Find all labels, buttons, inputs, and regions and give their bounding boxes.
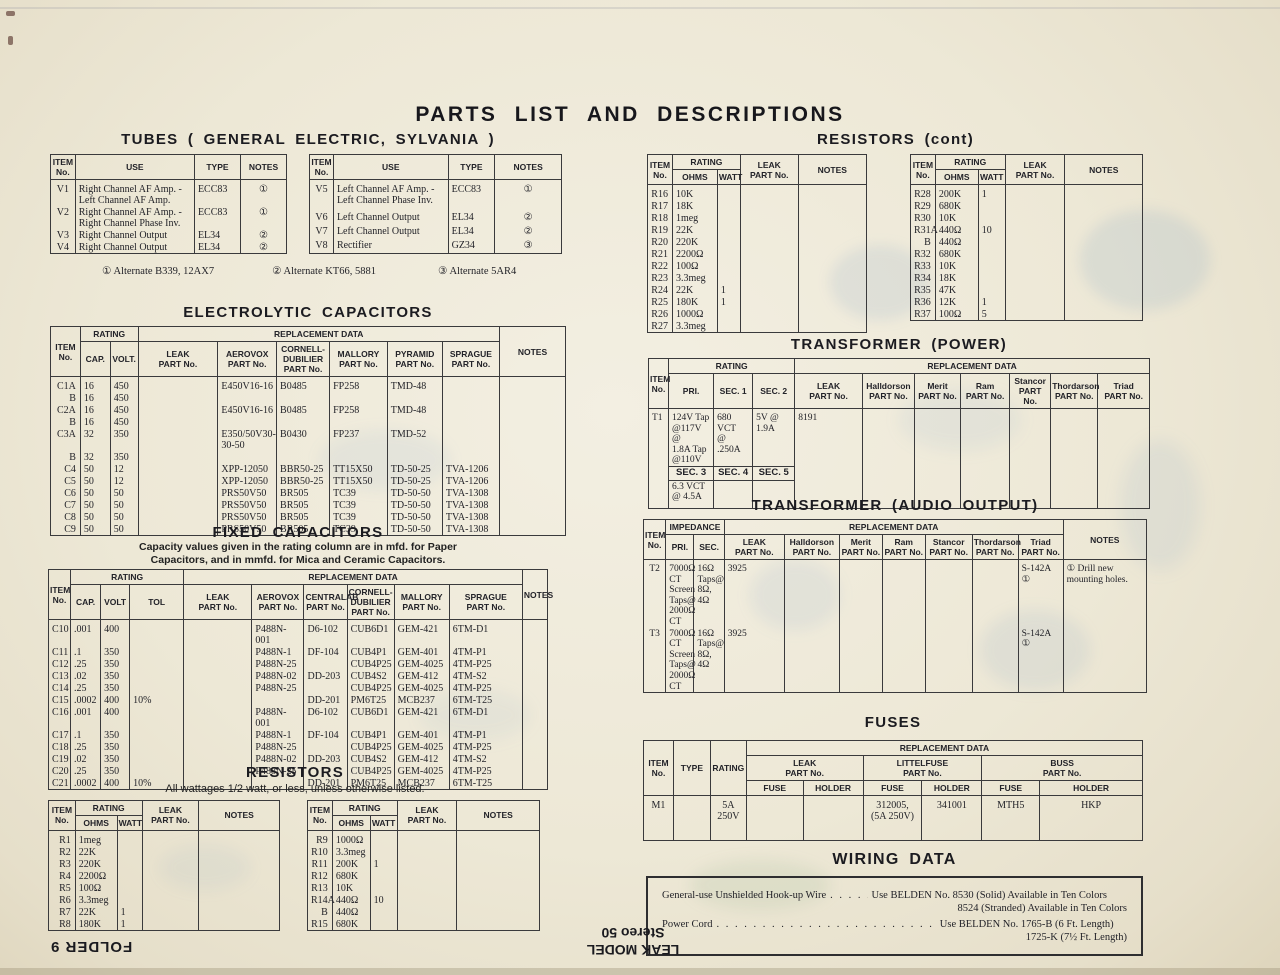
transformer-power-section: TRANSFORMER (POWER) ITEM No. RATING REPL… [648, 336, 1150, 509]
table-cell [1065, 236, 1143, 248]
table-cell [218, 392, 277, 404]
table-cell [500, 416, 566, 428]
col-header-pri: PRI. [666, 535, 694, 560]
transformer-audio-section: TRANSFORMER (AUDIO OUTPUT) ITEM No. IMPE… [643, 497, 1147, 693]
wiring-row: General-use Unshielded Hook-up Wire Use … [662, 889, 1127, 915]
table-cell: E450V16-16 [218, 404, 277, 416]
footnote-3: ③ Alternate 5AR4 [438, 265, 516, 277]
table-cell [252, 694, 304, 706]
fixed-capacitors-table: ITEM No. RATING REPLACEMENT DATA NOTES C… [48, 569, 548, 790]
table-cell [199, 906, 280, 918]
table-cell: .25 [71, 658, 101, 670]
table-cell [717, 212, 740, 224]
table-cell: 312005, (5A 250V) [863, 796, 922, 841]
scan-mark [8, 36, 13, 45]
table-cell [142, 894, 199, 906]
table-cell [130, 706, 184, 729]
col-header-buss: BUSS PART No. [982, 756, 1143, 781]
col-header-ohms: OHMS [672, 170, 717, 185]
col-header-fuse: FUSE [863, 781, 922, 796]
table-cell [925, 628, 972, 693]
table-cell [798, 308, 866, 320]
table-cell: 47K [935, 284, 978, 296]
table-row: R3418K [911, 272, 1143, 284]
col-header-leak: LEAK PART No. [138, 342, 218, 377]
table-cell: 10K [935, 260, 978, 272]
table-cell [500, 511, 566, 523]
table-cell: P488N-25 [252, 741, 304, 753]
col-header-cap: CAP. [71, 585, 101, 620]
table-cell: DF-104 [304, 729, 347, 741]
table-cell: TC39 [330, 511, 388, 523]
col-header-littelfuse: LITTELFUSE PART No. [863, 756, 982, 781]
table-cell: 220K [672, 236, 717, 248]
table-cell [522, 658, 547, 670]
table-cell: R17 [648, 200, 673, 212]
table-cell: ② [495, 225, 562, 239]
table-cell [717, 320, 740, 333]
table-cell: R14A [308, 894, 333, 906]
col-header-tol: TOL [130, 585, 184, 620]
table-cell: HKP [1040, 796, 1143, 841]
table-row: R1310K [308, 882, 540, 894]
table-cell: GEM-421 [394, 706, 449, 729]
table-cell: CUB4P1 [347, 729, 394, 741]
transformer-audio-heading: TRANSFORMER (AUDIO OUTPUT) [643, 497, 1147, 514]
table-cell: V5 [310, 180, 334, 211]
col-header-item: ITEM No. [644, 741, 674, 796]
table-cell: D6-102 [304, 620, 347, 647]
table-row: R3010K [911, 212, 1143, 224]
table-cell [522, 646, 547, 658]
table-cell: R27 [648, 320, 673, 333]
table-cell: V7 [310, 225, 334, 239]
table-row: R233.3meg [648, 272, 867, 284]
table-cell: ③ [495, 239, 562, 254]
table-cell [330, 392, 388, 404]
table-cell: 4TM-P25 [449, 741, 522, 753]
table-cell: P488N-25 [252, 658, 304, 670]
table-cell: TC39 [330, 487, 388, 499]
table-cell: 180K [672, 296, 717, 308]
table-cell: TVA-1206 [442, 475, 499, 487]
table-cell [740, 308, 798, 320]
col-header-holder: HOLDER [803, 781, 863, 796]
table-cell [304, 658, 347, 670]
table-cell [798, 248, 866, 260]
table-cell [1065, 260, 1143, 272]
resistors-subtitle: All wattages 1/2 watt, or less, unless o… [48, 783, 542, 796]
table-row: C16.001400P488N-001D6-102CUB6D1GEM-4216T… [49, 706, 548, 729]
col-header-leak: LEAK PART No. [184, 585, 252, 620]
table-row: R11meg [49, 830, 280, 846]
table-cell [522, 620, 547, 647]
table-row: R63.3meg [49, 894, 280, 906]
table-cell [978, 236, 1005, 248]
table-cell: C2A [51, 404, 81, 416]
table-cell [117, 894, 142, 906]
table-cell [1005, 185, 1065, 201]
table-cell: GEM-401 [394, 646, 449, 658]
table-cell: R23 [648, 272, 673, 284]
table-cell [457, 894, 540, 906]
table-cell [184, 694, 252, 706]
table-cell: R3 [49, 858, 76, 870]
table-cell: C16 [49, 706, 71, 729]
table-row: C13.02350P488N-02DD-203CUB4S2GEM-4124TM-… [49, 670, 548, 682]
table-cell: 12 [110, 475, 138, 487]
table-cell: 2200Ω [75, 870, 117, 882]
transformer-audio-table: ITEM No. IMPEDANCE REPLACEMENT DATA NOTE… [643, 519, 1147, 693]
table-cell [522, 670, 547, 682]
table-cell [740, 200, 798, 212]
table-cell [442, 416, 499, 428]
table-cell: EL34 [194, 229, 240, 241]
table-cell: TVA-1308 [442, 487, 499, 499]
table-cell: R13 [308, 882, 333, 894]
table-cell: 3925 [724, 560, 784, 628]
col-header-holder: HOLDER [1040, 781, 1143, 796]
table-cell: ① Drill new mounting holes. [1063, 560, 1146, 628]
table-cell: ① [495, 180, 562, 211]
col-header-merit: Merit PART No. [914, 374, 960, 409]
table-cell [500, 499, 566, 511]
col-header-watt: WATT [117, 815, 142, 830]
table-row: V5Left Channel AF Amp. - Left Channel Ph… [310, 180, 562, 211]
col-header-mallory: MALLORY PART No. [330, 342, 388, 377]
table-cell [457, 846, 540, 858]
table-cell [972, 560, 1018, 628]
table-row: R2422K1 [648, 284, 867, 296]
table-cell: 50 [110, 499, 138, 511]
table-cell [138, 511, 218, 523]
col-header-notes: NOTES [240, 155, 286, 180]
table-cell: 680K [935, 248, 978, 260]
table-cell: C7 [51, 499, 81, 511]
table-cell [138, 451, 218, 463]
col-header-merit: Merit PART No. [839, 535, 882, 560]
table-cell [387, 451, 442, 463]
table-cell [442, 428, 499, 451]
table-cell: B0430 [277, 428, 330, 451]
table-cell [387, 392, 442, 404]
table-cell [370, 882, 397, 894]
table-cell [370, 830, 397, 846]
col-header-notes: NOTES [1065, 155, 1143, 185]
table-row: C45012XPP-12050BBR50-25TT15X50TD-50-25TV… [51, 463, 566, 475]
table-cell: B [51, 416, 81, 428]
table-cell: 100Ω [935, 308, 978, 321]
table-cell: 440Ω [935, 224, 978, 236]
table-row: R212200Ω [648, 248, 867, 260]
table-cell: R1 [49, 830, 76, 846]
table-cell: 6TM-D1 [449, 706, 522, 729]
table-cell: 50 [80, 487, 110, 499]
table-cell [1065, 248, 1143, 260]
col-header-cornell-dubilier: CORNELL- DUBILIER PART No. [347, 585, 394, 620]
table-cell: ② [495, 211, 562, 225]
col-header-sprague: SPRAGUE PART No. [449, 585, 522, 620]
table-cell: S-142A ① [1018, 560, 1063, 628]
table-cell [961, 409, 1010, 509]
table-cell [142, 830, 199, 846]
table-cell [717, 224, 740, 236]
col-header-leak: LEAK PART No. [795, 374, 863, 409]
table-cell [740, 272, 798, 284]
wiring-value-line: Use BELDEN No. 8530 (Solid) Available in… [872, 889, 1127, 902]
col-header-item: ITEM No. [49, 800, 76, 830]
table-cell: 6TM-D1 [449, 620, 522, 647]
table-cell: EL34 [194, 241, 240, 254]
table-cell [803, 796, 863, 841]
col-header-thordarson: Thordarson PART No. [1051, 374, 1098, 409]
table-cell [1065, 185, 1143, 201]
table-cell: 4TM-P25 [449, 682, 522, 694]
table-cell: C14 [49, 682, 71, 694]
table-cell: GEM-401 [394, 729, 449, 741]
tubes-heading: TUBES ( GENERAL ELECTRIC, SYLVANIA ) [50, 131, 566, 148]
table-cell: B [51, 451, 81, 463]
table-cell [522, 682, 547, 694]
table-cell [522, 706, 547, 729]
table-row: C75050PRS50V50BR505TC39TD-50-50TVA-1308 [51, 499, 566, 511]
wiring-heading: WIRING DATA [646, 851, 1143, 869]
fuses-table: ITEM No. TYPE RATING REPLACEMENT DATA LE… [643, 740, 1143, 841]
table-cell [500, 463, 566, 475]
table-cell: R16 [648, 185, 673, 201]
table-cell: 400 [101, 694, 130, 706]
table-cell [138, 463, 218, 475]
table-cell [717, 200, 740, 212]
table-cell: E450V16-16 [218, 377, 277, 393]
col-header-use: USE [75, 155, 194, 180]
table-cell: 10K [935, 212, 978, 224]
table-cell [740, 248, 798, 260]
col-header-ram: Ram PART No. [961, 374, 1010, 409]
table-cell [370, 846, 397, 858]
table-cell [397, 906, 457, 918]
table-cell [130, 682, 184, 694]
table-cell [218, 416, 277, 428]
table-cell [978, 272, 1005, 284]
table-cell [184, 658, 252, 670]
table-cell: TMD-48 [387, 377, 442, 393]
table-cell: EL34 [448, 211, 495, 225]
table-cell: 18K [672, 200, 717, 212]
table-cell: .0002 [71, 694, 101, 706]
col-header-fuse: FUSE [982, 781, 1040, 796]
table-cell: C18 [49, 741, 71, 753]
table-cell: V4 [51, 241, 76, 254]
fuses-section: FUSES ITEM No. TYPE RATING REPLACEMENT D… [643, 714, 1143, 841]
table-cell [500, 451, 566, 463]
table-cell: 22K [75, 906, 117, 918]
table-cell: R6 [49, 894, 76, 906]
table-cell [798, 212, 866, 224]
footnote-2: ② Alternate KT66, 5881 [272, 265, 376, 277]
table-cell: C4 [51, 463, 81, 475]
col-header-item: ITEM No. [49, 570, 71, 620]
wiring-values: Use BELDEN No. 1765-B (6 Ft. Length) 172… [940, 918, 1127, 944]
table-cell [142, 918, 199, 931]
table-cell: ② [240, 229, 286, 241]
scan-mark [6, 11, 15, 16]
col-header-impedance: IMPEDANCE [666, 520, 725, 535]
table-cell [673, 796, 710, 841]
col-header-item: ITEM No. [310, 155, 334, 180]
table-cell: PRS50V50 [218, 499, 277, 511]
table-cell [1065, 272, 1143, 284]
table-cell: R10 [308, 846, 333, 858]
table-cell: 16 [80, 416, 110, 428]
table-cell [138, 392, 218, 404]
table-cell [798, 236, 866, 248]
table-cell [138, 475, 218, 487]
table-cell: R22 [648, 260, 673, 272]
table-cell: Left Channel AF Amp. - Left Channel Phas… [333, 180, 448, 211]
table-cell [1005, 248, 1065, 260]
table-cell: 12K [935, 296, 978, 308]
table-cell: 7000Ω CT Screen Taps@ 2000Ω CT [666, 628, 694, 693]
table-cell [117, 858, 142, 870]
table-cell [1005, 284, 1065, 296]
table-row: R1610K [648, 185, 867, 201]
table-cell: CUB4P1 [347, 646, 394, 658]
table-row: R12680K [308, 870, 540, 882]
table-cell [1005, 308, 1065, 321]
table-cell: FP237 [330, 428, 388, 451]
table-cell: TD-50-50 [387, 487, 442, 499]
table-cell: C5 [51, 475, 81, 487]
dot-leader [830, 889, 867, 902]
table-cell [522, 694, 547, 706]
table-cell [387, 416, 442, 428]
table-row: R1922K [648, 224, 867, 236]
table-cell: R31A [911, 224, 936, 236]
table-cell [277, 451, 330, 463]
table-row: R181meg [648, 212, 867, 224]
table-row: R28200K1 [911, 185, 1143, 201]
col-header-replacement: REPLACEMENT DATA [184, 570, 523, 585]
table-cell [142, 906, 199, 918]
table-row: B440Ω [308, 906, 540, 918]
table-cell: R12 [308, 870, 333, 882]
table-cell: R7 [49, 906, 76, 918]
table-cell: PM6T25 [347, 694, 394, 706]
table-cell: 22K [672, 224, 717, 236]
table-row: R31A440Ω10 [911, 224, 1143, 236]
table-cell: .001 [71, 706, 101, 729]
table-row: C1A16450E450V16-16B0485FP258TMD-48 [51, 377, 566, 393]
table-cell [138, 416, 218, 428]
table-cell [522, 729, 547, 741]
table-row: R1718K [648, 200, 867, 212]
table-cell: TC39 [330, 499, 388, 511]
table-row: M15A 250V312005, (5A 250V)341001MTH5HKP [644, 796, 1143, 841]
table-cell [218, 451, 277, 463]
table-cell: R26 [648, 308, 673, 320]
table-cell: R15 [308, 918, 333, 931]
table-row: R37100Ω5 [911, 308, 1143, 321]
table-cell [798, 284, 866, 296]
col-header-holder: HOLDER [922, 781, 982, 796]
table-cell [740, 185, 798, 201]
table-cell: PRS50V50 [218, 487, 277, 499]
table-cell [746, 796, 803, 841]
table-cell: Left Channel Output [333, 225, 448, 239]
table-cell: 16Ω Taps@ 8Ω, 4Ω [694, 560, 724, 628]
table-cell: 50 [80, 499, 110, 511]
table-cell [717, 248, 740, 260]
table-cell [717, 185, 740, 201]
col-header-ohms: OHMS [332, 815, 370, 830]
table-cell [839, 628, 882, 693]
page-fold-line [0, 7, 1280, 9]
table-row: R14A440Ω10 [308, 894, 540, 906]
table-row: R273.3meg [648, 320, 867, 333]
table-cell: 10% [130, 694, 184, 706]
table-cell: 100Ω [75, 882, 117, 894]
table-row: R3547K [911, 284, 1143, 296]
table-cell: 350 [101, 741, 130, 753]
table-cell [457, 906, 540, 918]
table-row: V1Right Channel AF Amp. - Left Channel A… [51, 180, 287, 207]
table-cell: R9 [308, 830, 333, 846]
table-cell: 450 [110, 404, 138, 416]
table-cell: R21 [648, 248, 673, 260]
table-row: T37000Ω CT Screen Taps@ 2000Ω CT16Ω Taps… [644, 628, 1147, 693]
table-cell: 680 VCT @ .250A [714, 409, 753, 467]
col-header-replacement: REPLACEMENT DATA [724, 520, 1063, 535]
col-header-cap: CAP. [80, 342, 110, 377]
table-cell: T3 [644, 628, 666, 693]
col-header-rating: RATING [332, 800, 397, 815]
table-cell: R2 [49, 846, 76, 858]
table-cell: P488N-001 [252, 620, 304, 647]
table-cell: 680K [935, 200, 978, 212]
col-header-leak: LEAK PART No. [724, 535, 784, 560]
table-cell [1005, 212, 1065, 224]
table-cell: V2 [51, 206, 76, 229]
table-cell [199, 918, 280, 931]
table-cell: 124V Tap @117V @ 1.8A Tap @110V [669, 409, 714, 467]
table-cell: B [308, 906, 333, 918]
col-header-item: ITEM No. [648, 155, 673, 185]
table-cell [500, 487, 566, 499]
table-cell: 10 [978, 224, 1005, 236]
table-cell: ① [240, 180, 286, 207]
col-header-sec2: SEC. 2 [753, 374, 795, 409]
table-cell: V1 [51, 180, 76, 207]
col-header-leak: LEAK PART No. [1005, 155, 1065, 185]
table-cell: 32 [80, 428, 110, 451]
col-header-sprague: SPRAGUE PART No. [442, 342, 499, 377]
col-header-watt: WATT [370, 815, 397, 830]
table-cell [199, 882, 280, 894]
table-cell [397, 830, 457, 846]
table-cell [717, 236, 740, 248]
table-cell: TT15X50 [330, 475, 388, 487]
electrolytic-heading: ELECTROLYTIC CAPACITORS [50, 304, 566, 321]
table-cell: ② [240, 241, 286, 254]
col-header-volt: VOLT [101, 585, 130, 620]
table-cell [370, 870, 397, 882]
col-header-notes: NOTES [522, 570, 547, 620]
table-cell: V6 [310, 211, 334, 225]
table-cell: TMD-52 [387, 428, 442, 451]
fixed-subtitle-line2: Capacitors, and in mmfd. for Mica and Ce… [48, 554, 548, 567]
table-cell: .1 [71, 729, 101, 741]
